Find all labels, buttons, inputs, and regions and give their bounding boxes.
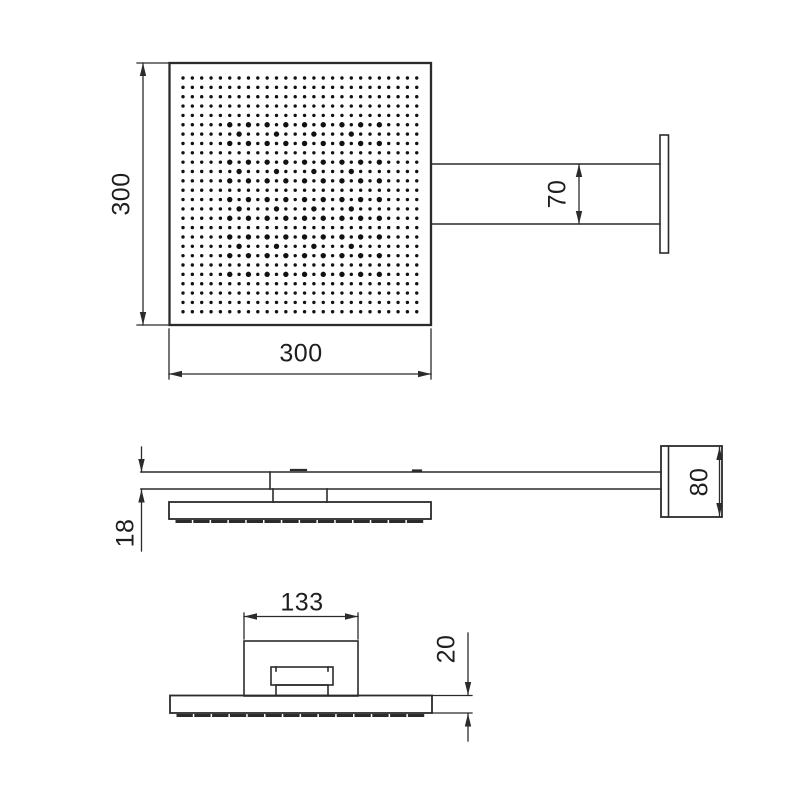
dimension-70-arm (576, 164, 582, 224)
dim-label-20: 20 (433, 635, 462, 664)
inner-connector (271, 667, 333, 696)
dimension-300-left (137, 63, 169, 325)
dim-label-133: 133 (280, 589, 323, 618)
dim-label-300-left: 300 (108, 172, 137, 215)
top-view (137, 63, 669, 379)
drawing-linework (0, 0, 800, 787)
side-view (138, 446, 722, 551)
shower-head-outline (170, 63, 432, 325)
nozzle-grid (181, 76, 418, 313)
dimension-20 (465, 633, 471, 741)
dim-label-300-bottom: 300 (279, 340, 322, 369)
technical-drawing: 300 300 70 18 80 133 20 (0, 0, 800, 787)
front-view (170, 613, 472, 741)
connector-housing (244, 641, 358, 696)
wall-plate-edge (660, 135, 669, 253)
dim-label-18: 18 (112, 519, 141, 548)
dim-label-70: 70 (544, 180, 573, 209)
side-arm (141, 470, 661, 489)
side-connector (273, 489, 327, 502)
head-front-profile (170, 696, 432, 714)
dim-label-80: 80 (686, 468, 715, 497)
head-side-profile (169, 502, 431, 519)
